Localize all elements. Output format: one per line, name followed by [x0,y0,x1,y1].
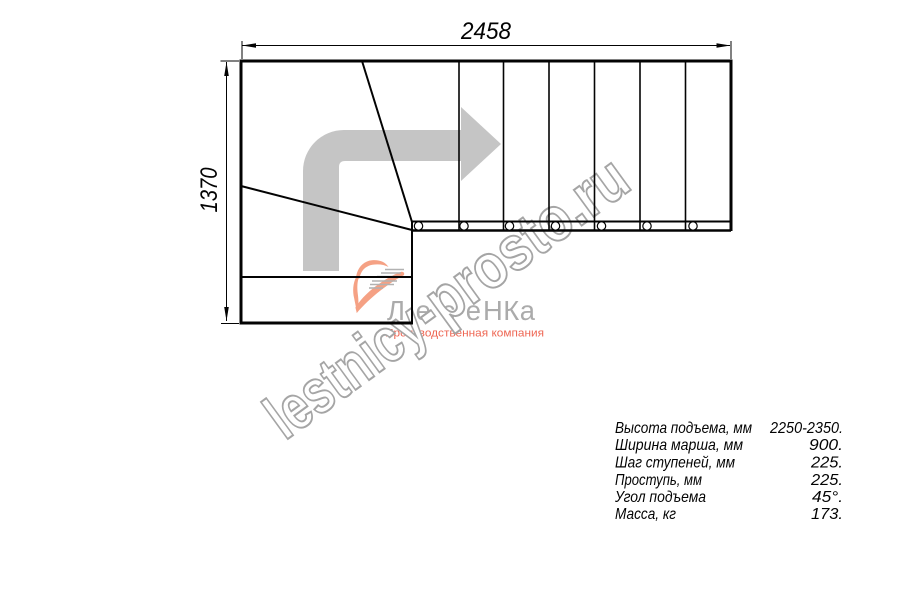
svg-text:2250-2350.: 2250-2350. [769,420,843,437]
svg-text:173.: 173. [811,506,843,523]
svg-text:900.: 900. [809,437,843,454]
svg-text:Шаг ступеней, мм: Шаг ступеней, мм [615,455,735,472]
svg-text:Масса, кг: Масса, кг [615,506,676,523]
svg-text:Высота подъема, мм: Высота подъема, мм [615,420,752,437]
svg-text:45°.: 45°. [812,489,843,506]
svg-text:Угол подъема: Угол подъема [614,489,706,506]
svg-text:1370: 1370 [196,167,223,213]
svg-text:225.: 225. [810,472,843,489]
svg-text:225.: 225. [810,455,843,472]
svg-text:Проступь, мм: Проступь, мм [615,472,702,489]
svg-text:2458: 2458 [460,18,512,45]
svg-text:Ширина марша, мм: Ширина марша, мм [615,437,743,454]
